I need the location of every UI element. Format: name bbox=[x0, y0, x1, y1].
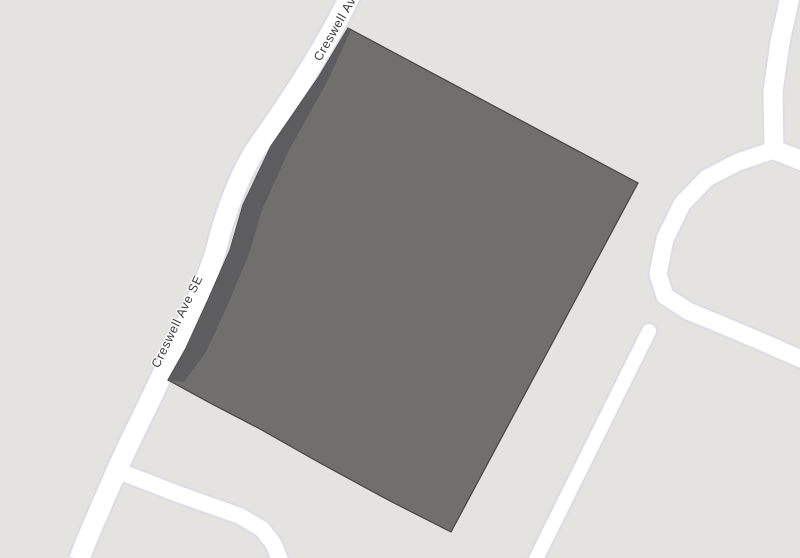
road-northeast-east-spur bbox=[774, 150, 800, 163]
map-render-layer bbox=[0, 0, 800, 558]
map-canvas[interactable]: Creswell Ave SE Creswell Ave SE bbox=[0, 0, 800, 558]
